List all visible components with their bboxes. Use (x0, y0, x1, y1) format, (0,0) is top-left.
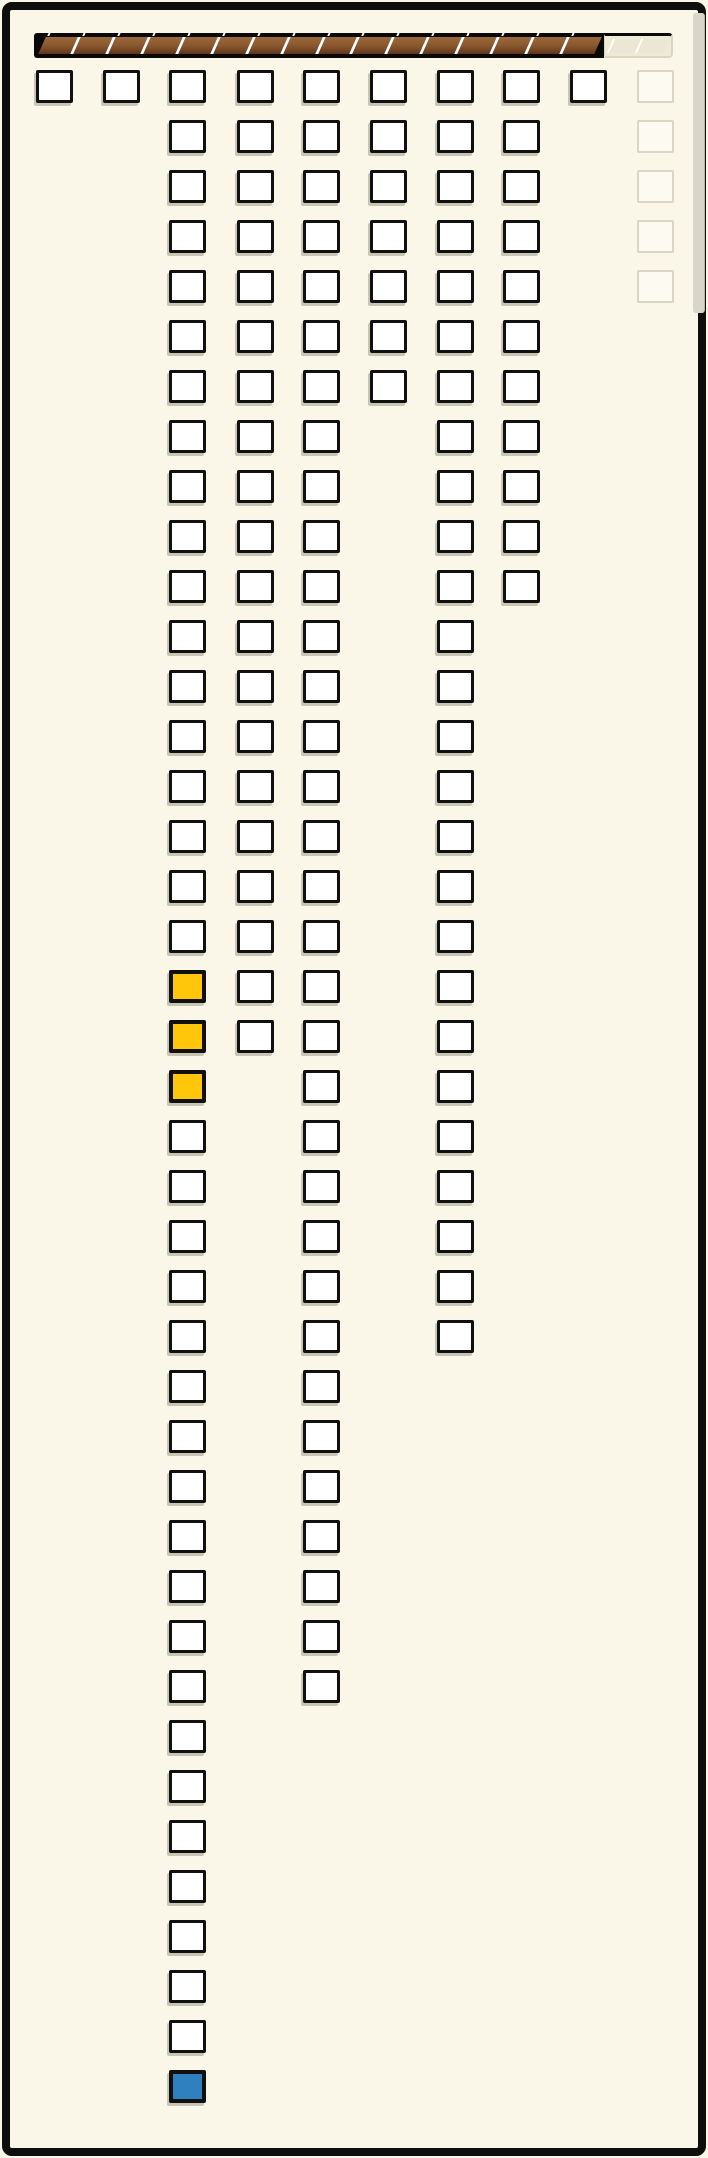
checkbox-cell[interactable] (169, 1920, 206, 1953)
checkbox-cell[interactable] (303, 870, 340, 903)
checkbox-cell[interactable] (169, 1020, 206, 1053)
checkbox-cell[interactable] (169, 1870, 206, 1903)
checkbox-cell[interactable] (303, 470, 340, 503)
checkbox-cell[interactable] (237, 670, 274, 703)
checkbox-cell[interactable] (570, 70, 607, 103)
checkbox-cell[interactable] (303, 1470, 340, 1503)
checkbox-cell[interactable] (370, 170, 407, 203)
checkbox-cell[interactable] (303, 1570, 340, 1603)
checkbox-cell[interactable] (237, 220, 274, 253)
checkbox-cell[interactable] (303, 1320, 340, 1353)
checkbox-cell[interactable] (437, 370, 474, 403)
checkbox-cell[interactable] (303, 420, 340, 453)
checkbox-cell[interactable] (503, 220, 540, 253)
checkbox-cell[interactable] (303, 1120, 340, 1153)
checkbox-cell[interactable] (237, 820, 274, 853)
checkbox-cell[interactable] (437, 220, 474, 253)
checkbox-cell[interactable] (303, 520, 340, 553)
checkbox-cell[interactable] (237, 470, 274, 503)
checkbox-cell[interactable] (169, 870, 206, 903)
checkbox-cell[interactable] (503, 420, 540, 453)
checkbox-cell[interactable] (169, 670, 206, 703)
checkbox-cell[interactable] (237, 720, 274, 753)
checkbox-cell[interactable] (169, 270, 206, 303)
checkbox-cell[interactable] (503, 470, 540, 503)
checkbox-cell[interactable] (169, 1370, 206, 1403)
checkbox-cell[interactable] (437, 770, 474, 803)
checkbox-cell[interactable] (169, 1670, 206, 1703)
checkbox-cell[interactable] (237, 770, 274, 803)
checkbox-cell[interactable] (169, 920, 206, 953)
checkbox-cell[interactable] (303, 1420, 340, 1453)
checkbox-cell[interactable] (169, 1770, 206, 1803)
checkbox-cell[interactable] (437, 1170, 474, 1203)
checkbox-cell[interactable] (303, 320, 340, 353)
ghost-cell (637, 270, 674, 303)
checkbox-cell[interactable] (169, 1220, 206, 1253)
checkbox-cell[interactable] (303, 720, 340, 753)
checkbox-cell[interactable] (370, 270, 407, 303)
checkbox-cell[interactable] (169, 820, 206, 853)
checkbox-cell[interactable] (169, 1320, 206, 1353)
checkbox-cell[interactable] (437, 870, 474, 903)
checkbox-cell[interactable] (169, 1570, 206, 1603)
checkbox-cell[interactable] (169, 1970, 206, 2003)
checkbox-cell[interactable] (303, 770, 340, 803)
checkbox-cell[interactable] (169, 620, 206, 653)
checkbox-cell[interactable] (169, 1620, 206, 1653)
checkbox-cell[interactable] (503, 320, 540, 353)
checkbox-cell[interactable] (503, 520, 540, 553)
checkbox-cell[interactable] (237, 370, 274, 403)
checkbox-cell[interactable] (503, 170, 540, 203)
checkbox-cell[interactable] (303, 1670, 340, 1703)
checkbox-cell[interactable] (103, 70, 140, 103)
progress-segment-remaining (635, 39, 669, 53)
checkbox-cell[interactable] (503, 120, 540, 153)
checkbox-cell[interactable] (303, 920, 340, 953)
checkbox-cell[interactable] (370, 320, 407, 353)
checkbox-cell[interactable] (169, 70, 206, 103)
checkbox-cell[interactable] (169, 1720, 206, 1753)
checkbox-cell[interactable] (169, 1820, 206, 1853)
checkbox-cell[interactable] (437, 170, 474, 203)
checkbox-cell[interactable] (237, 870, 274, 903)
checkbox-cell[interactable] (437, 470, 474, 503)
checkbox-cell[interactable] (169, 570, 206, 603)
checkbox-cell[interactable] (303, 370, 340, 403)
checkbox-cell[interactable] (503, 370, 540, 403)
checkbox-cell[interactable] (503, 570, 540, 603)
checkbox-cell[interactable] (237, 570, 274, 603)
checkbox-cell[interactable] (303, 220, 340, 253)
checkbox-cell[interactable] (237, 1020, 274, 1053)
checkbox-cell[interactable] (237, 420, 274, 453)
checkbox-cell[interactable] (237, 920, 274, 953)
checkbox-cell[interactable] (169, 170, 206, 203)
checkbox-cell[interactable] (437, 1220, 474, 1253)
checkbox-cell[interactable] (303, 170, 340, 203)
checkbox-cell[interactable] (437, 1020, 474, 1053)
checkbox-cell[interactable] (303, 1220, 340, 1253)
checkbox-cell[interactable] (503, 270, 540, 303)
checkbox-cell[interactable] (437, 820, 474, 853)
checkbox-cell[interactable] (169, 1270, 206, 1303)
checkbox-cell[interactable] (370, 70, 407, 103)
checkbox-cell[interactable] (303, 1520, 340, 1553)
ghost-cell (637, 220, 674, 253)
checkbox-cell[interactable] (303, 670, 340, 703)
checkbox-cell[interactable] (169, 970, 206, 1003)
checkbox-cell[interactable] (169, 1070, 206, 1103)
checkbox-cell[interactable] (437, 920, 474, 953)
checkbox-cell[interactable] (169, 320, 206, 353)
ghost-cell (637, 120, 674, 153)
checkbox-cell[interactable] (503, 70, 540, 103)
checkbox-cell[interactable] (437, 620, 474, 653)
page-frame (2, 2, 706, 2156)
checkbox-cell[interactable] (303, 1020, 340, 1053)
checkbox-cell[interactable] (437, 270, 474, 303)
checkbox-cell[interactable] (303, 120, 340, 153)
checkbox-cell[interactable] (303, 1170, 340, 1203)
checkbox-cell[interactable] (169, 520, 206, 553)
checkbox-cell[interactable] (437, 420, 474, 453)
checkbox-cell[interactable] (169, 470, 206, 503)
checkbox-cell[interactable] (169, 1170, 206, 1203)
checkbox-cell[interactable] (303, 1270, 340, 1303)
checkbox-cell[interactable] (370, 220, 407, 253)
checkbox-cell[interactable] (169, 220, 206, 253)
checkbox-cell[interactable] (437, 1120, 474, 1153)
checkbox-cell[interactable] (237, 970, 274, 1003)
checkbox-cell[interactable] (169, 420, 206, 453)
checkbox-cell[interactable] (169, 1520, 206, 1553)
progress-bar-remaining (603, 33, 673, 58)
checkbox-cell[interactable] (237, 170, 274, 203)
checkbox-cell[interactable] (303, 620, 340, 653)
checkbox-cell[interactable] (237, 320, 274, 353)
checkbox-cell[interactable] (237, 520, 274, 553)
checkbox-cell[interactable] (437, 670, 474, 703)
checkbox-cell[interactable] (169, 2070, 206, 2103)
checkbox-cell[interactable] (437, 570, 474, 603)
checkbox-cell[interactable] (169, 370, 206, 403)
checkbox-cell[interactable] (36, 70, 73, 103)
checkbox-cell[interactable] (437, 320, 474, 353)
checkbox-cell[interactable] (169, 1420, 206, 1453)
checkbox-cell[interactable] (169, 720, 206, 753)
progress-bar (34, 33, 604, 58)
checkbox-cell[interactable] (437, 970, 474, 1003)
checkbox-cell[interactable] (370, 370, 407, 403)
checkbox-cell[interactable] (303, 970, 340, 1003)
checkbox-cell[interactable] (169, 770, 206, 803)
checkbox-cell[interactable] (437, 70, 474, 103)
app-page (0, 0, 708, 2158)
checkbox-cell[interactable] (437, 1270, 474, 1303)
checkbox-cell[interactable] (303, 1370, 340, 1403)
ghost-cell (637, 170, 674, 203)
checkbox-cell[interactable] (169, 120, 206, 153)
checkbox-cell[interactable] (303, 270, 340, 303)
checkbox-cell[interactable] (437, 520, 474, 553)
checkbox-cell[interactable] (169, 2020, 206, 2053)
checkbox-cell[interactable] (237, 270, 274, 303)
checkbox-cell[interactable] (303, 70, 340, 103)
checkbox-cell[interactable] (237, 120, 274, 153)
checkbox-cell[interactable] (303, 1070, 340, 1103)
progress-segment-filled (559, 37, 602, 54)
checkbox-cell[interactable] (370, 120, 407, 153)
checkbox-cell[interactable] (437, 1320, 474, 1353)
checkbox-cell[interactable] (303, 820, 340, 853)
checkbox-cell[interactable] (437, 120, 474, 153)
checkbox-cell[interactable] (169, 1470, 206, 1503)
checkbox-cell[interactable] (303, 570, 340, 603)
checkbox-cell[interactable] (437, 1070, 474, 1103)
checkbox-cell[interactable] (303, 1620, 340, 1653)
ghost-cell (637, 70, 674, 103)
checkbox-cell[interactable] (237, 620, 274, 653)
checkbox-cell[interactable] (437, 720, 474, 753)
scrollbar-thumb[interactable] (693, 13, 705, 313)
checkbox-cell[interactable] (169, 1120, 206, 1153)
checkbox-cell[interactable] (237, 70, 274, 103)
